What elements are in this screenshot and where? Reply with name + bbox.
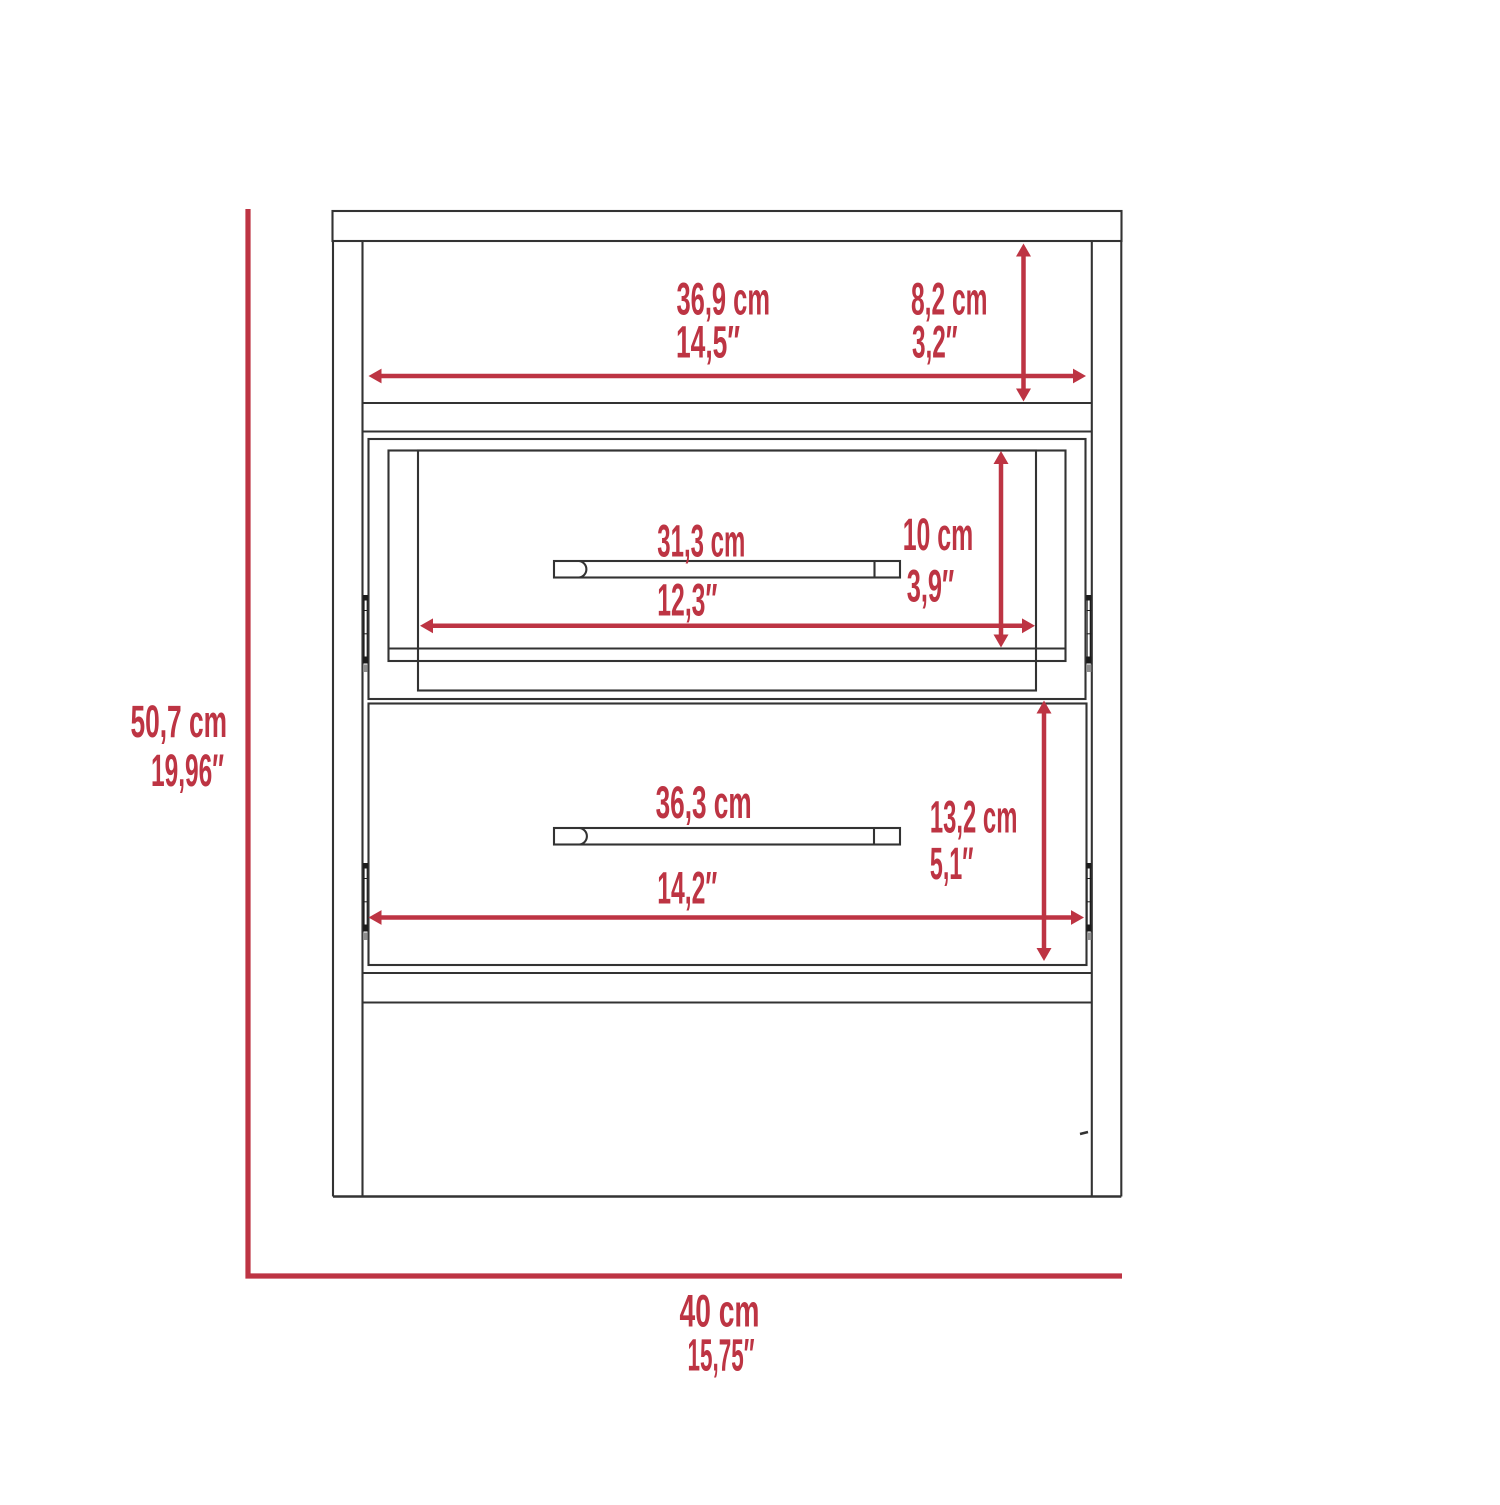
svg-text:5,1″: 5,1″	[930, 838, 974, 889]
svg-text:3,9″: 3,9″	[907, 561, 955, 612]
svg-text:15,75″: 15,75″	[688, 1330, 755, 1381]
svg-text:14,2″: 14,2″	[657, 863, 717, 914]
svg-text:14,5″: 14,5″	[676, 317, 740, 368]
svg-text:19,96″: 19,96″	[151, 745, 224, 796]
svg-text:13,2 cm: 13,2 cm	[930, 792, 1018, 843]
svg-text:31,3 cm: 31,3 cm	[657, 516, 745, 567]
svg-text:12,3″: 12,3″	[657, 575, 717, 626]
svg-text:36,3 cm: 36,3 cm	[656, 777, 752, 828]
svg-text:50,7 cm: 50,7 cm	[131, 696, 228, 747]
svg-text:10 cm: 10 cm	[903, 509, 974, 560]
svg-text:3,2″: 3,2″	[912, 317, 958, 368]
